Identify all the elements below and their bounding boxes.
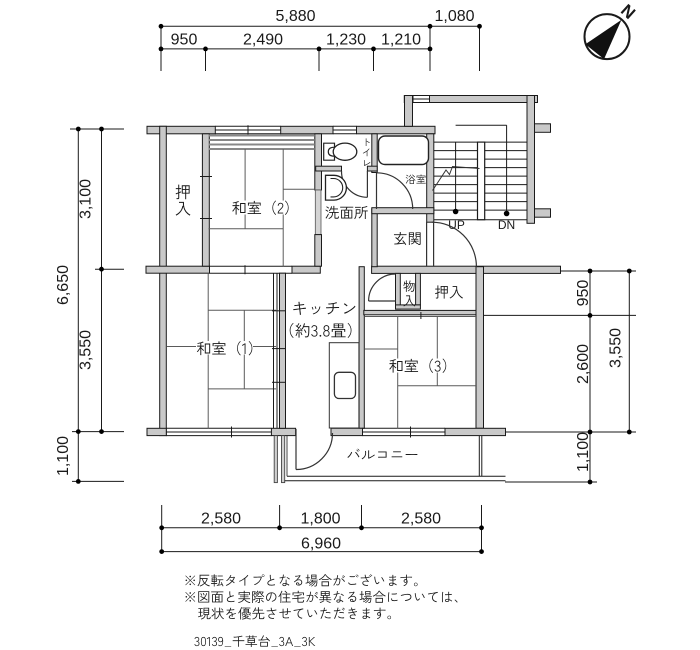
svg-text:1,210: 1,210 — [381, 32, 421, 49]
svg-text:2,580: 2,580 — [201, 511, 241, 528]
svg-text:5,880: 5,880 — [275, 8, 315, 25]
svg-text:1,230: 1,230 — [326, 32, 366, 49]
svg-text:1,800: 1,800 — [300, 511, 340, 528]
svg-text:6,650: 6,650 — [55, 265, 72, 305]
svg-text:2,580: 2,580 — [401, 511, 441, 528]
svg-text:950: 950 — [575, 280, 592, 307]
svg-text:1,100: 1,100 — [575, 432, 592, 472]
svg-text:1,100: 1,100 — [55, 436, 72, 476]
svg-text:950: 950 — [171, 32, 198, 49]
svg-text:3,550: 3,550 — [608, 328, 625, 368]
svg-text:6,960: 6,960 — [301, 536, 341, 553]
svg-text:3,550: 3,550 — [78, 330, 95, 370]
svg-text:1,080: 1,080 — [434, 8, 474, 25]
svg-text:3,100: 3,100 — [78, 179, 95, 219]
svg-text:DN: DN — [498, 218, 515, 232]
svg-text:2,490: 2,490 — [243, 32, 283, 49]
svg-text:2,600: 2,600 — [575, 344, 592, 384]
